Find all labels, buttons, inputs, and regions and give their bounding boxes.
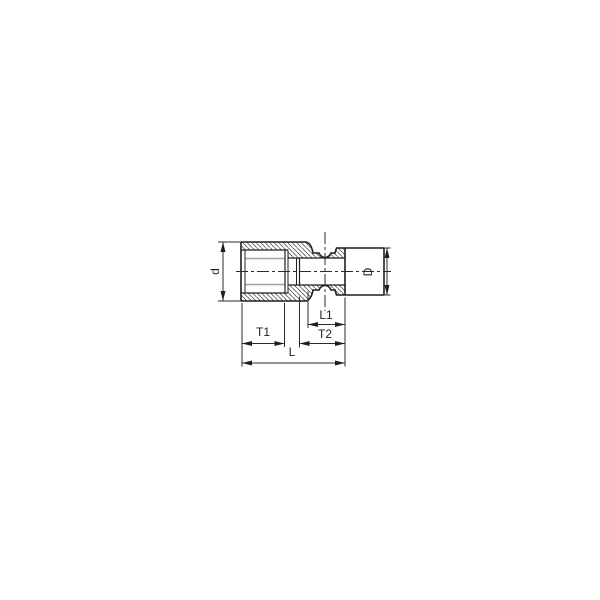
d-arrow-top [221, 242, 226, 252]
dimension-T2: T2 [300, 297, 346, 348]
L-arrow-right [335, 361, 345, 366]
T1-arrow-right [275, 341, 285, 346]
D-arrow-top [385, 248, 390, 258]
dim-label-L: L [289, 345, 296, 359]
d-arrow-bottom [221, 291, 226, 301]
D-arrow-bottom [385, 285, 390, 295]
dim-label-L1: L1 [319, 308, 333, 322]
dim-label-T2: T2 [318, 327, 332, 341]
L1-arrow-left [308, 322, 318, 327]
page-canvas: d D T1 L1 [0, 0, 600, 600]
dimension-T1: T1 [242, 303, 285, 367]
T2-arrow-right [335, 341, 345, 346]
L-arrow-left [242, 361, 252, 366]
L1-arrow-right [335, 322, 345, 327]
T1-arrow-left [242, 341, 252, 346]
dim-label-d: d [208, 268, 222, 275]
socket-technical-drawing: d D T1 L1 [0, 0, 600, 600]
dimension-L1: L1 [308, 292, 345, 329]
dim-label-T1: T1 [256, 325, 270, 339]
T2-arrow-left [300, 341, 310, 346]
dim-label-D: D [361, 267, 375, 276]
